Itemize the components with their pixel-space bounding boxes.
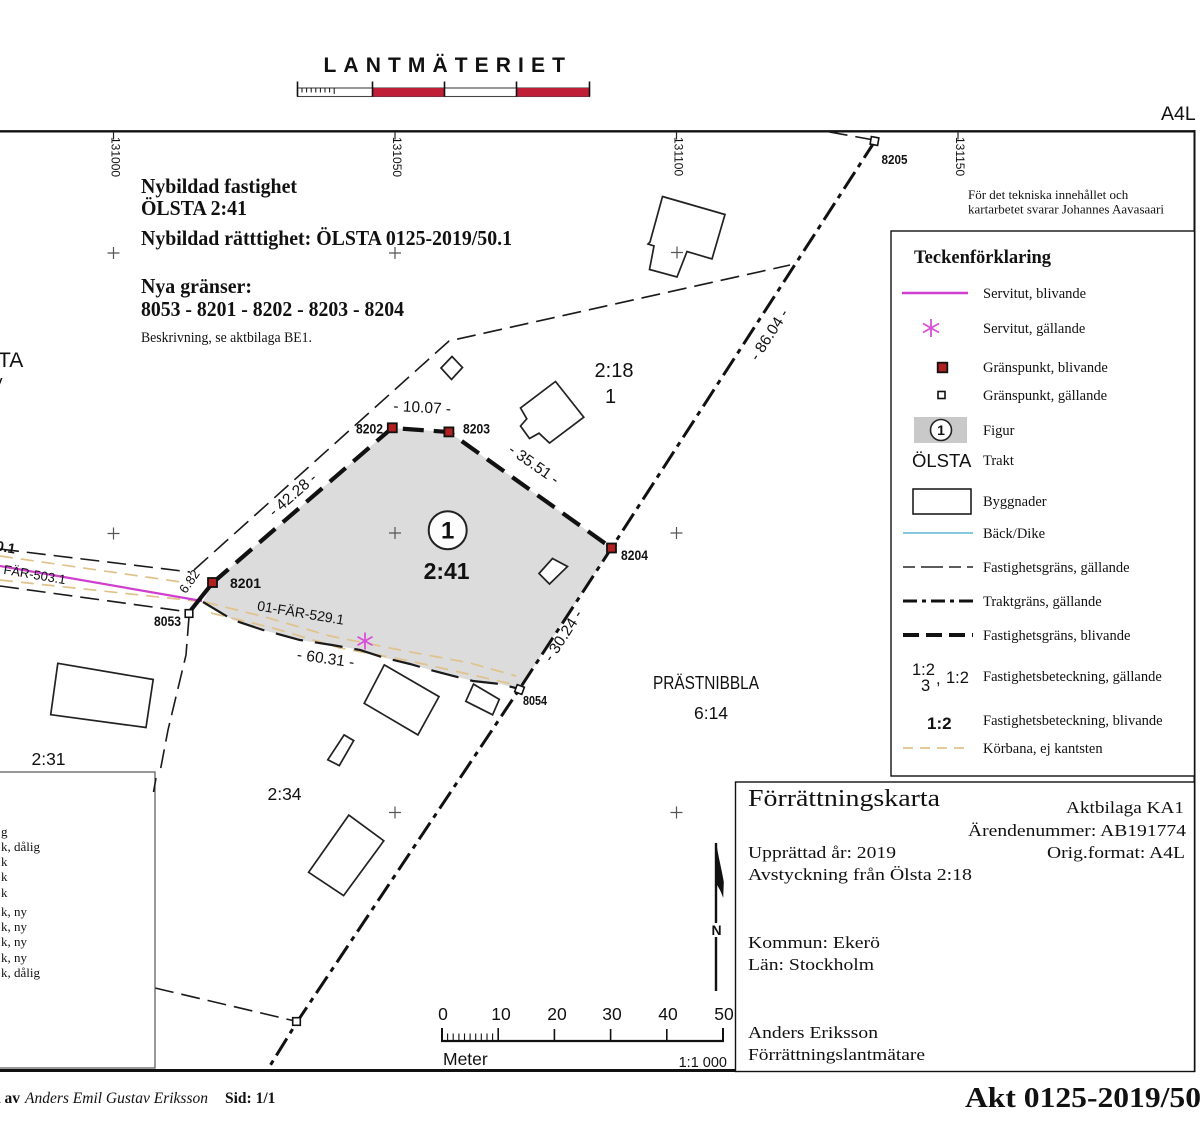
svg-text:131100: 131100 bbox=[672, 137, 686, 176]
svg-text:6.82: 6.82 bbox=[176, 567, 203, 596]
svg-text:8203: 8203 bbox=[463, 422, 490, 437]
svg-text:Orig.format: A4L: Orig.format: A4L bbox=[1047, 843, 1185, 862]
svg-text:ÖLSTA 2:41: ÖLSTA 2:41 bbox=[141, 196, 247, 220]
svg-text:k, dålig: k, dålig bbox=[1, 965, 40, 980]
svg-text:Meter: Meter bbox=[443, 1049, 488, 1069]
svg-text:Förrättningslantmätare: Förrättningslantmätare bbox=[748, 1045, 925, 1064]
svg-text:8204: 8204 bbox=[621, 548, 648, 563]
svg-text:2:41: 2:41 bbox=[424, 558, 470, 584]
svg-text:k, ny: k, ny bbox=[1, 950, 28, 965]
svg-text:A4L: A4L bbox=[1161, 103, 1196, 125]
svg-text:Servitut, blivande: Servitut, blivande bbox=[983, 286, 1086, 302]
svg-text:Traktgräns, gällande: Traktgräns, gällande bbox=[983, 594, 1102, 610]
svg-text:2:18: 2:18 bbox=[595, 360, 634, 382]
svg-text:40: 40 bbox=[658, 1004, 678, 1024]
svg-text:FÄR-503.1: FÄR-503.1 bbox=[2, 562, 66, 587]
svg-text:Fastighetsbeteckning, blivande: Fastighetsbeteckning, blivande bbox=[983, 713, 1163, 729]
svg-text:8201: 8201 bbox=[230, 576, 261, 591]
svg-text:131150: 131150 bbox=[953, 137, 967, 176]
svg-text:Fastighetsgräns, blivande: Fastighetsgräns, blivande bbox=[983, 628, 1130, 644]
svg-text:Avstyckning från Ölsta 2:18: Avstyckning från Ölsta 2:18 bbox=[748, 865, 972, 884]
svg-text:kartarbetet svarar Johannes Aa: kartarbetet svarar Johannes Aavasaari bbox=[968, 202, 1164, 217]
svg-text:Trakt: Trakt bbox=[983, 453, 1014, 469]
svg-text:För det tekniska innehållet oc: För det tekniska innehållet och bbox=[968, 187, 1129, 202]
svg-text:131000: 131000 bbox=[109, 137, 123, 177]
svg-text:,: , bbox=[936, 670, 941, 688]
svg-text:Gränspunkt, gällande: Gränspunkt, gällande bbox=[983, 388, 1107, 404]
svg-text:Gränspunkt, blivande: Gränspunkt, blivande bbox=[983, 360, 1108, 376]
svg-text:20: 20 bbox=[547, 1004, 567, 1024]
svg-text:Teckenförklaring: Teckenförklaring bbox=[914, 248, 1052, 268]
svg-text:Körbana, ej kantsten: Körbana, ej kantsten bbox=[983, 741, 1103, 757]
svg-text:8054: 8054 bbox=[523, 694, 547, 708]
svg-text:Bäck/Dike: Bäck/Dike bbox=[983, 526, 1045, 542]
svg-text:Nybildad fastighet: Nybildad fastighet bbox=[141, 174, 297, 198]
svg-text:8205: 8205 bbox=[882, 153, 908, 167]
svg-text:- 86.04 -: - 86.04 - bbox=[747, 306, 793, 364]
svg-text:8053 - 8201 - 8202 - 8203 - 82: 8053 - 8201 - 8202 - 8203 - 8204 bbox=[141, 297, 404, 321]
svg-text:k, ny: k, ny bbox=[1, 904, 28, 919]
svg-text:k: k bbox=[1, 869, 8, 884]
svg-text:k: k bbox=[1, 854, 8, 869]
svg-text:Nybildad rätttighet: ÖLSTA 012: Nybildad rätttighet: ÖLSTA 0125-2019/50.… bbox=[141, 226, 512, 250]
svg-text:0.1: 0.1 bbox=[0, 538, 17, 557]
svg-text:Servitut, gällande: Servitut, gällande bbox=[983, 321, 1085, 337]
svg-text:131050: 131050 bbox=[390, 137, 404, 177]
svg-text:2:31: 2:31 bbox=[31, 749, 65, 769]
svg-text:TA: TA bbox=[0, 349, 23, 372]
svg-text:Nya gränser:: Nya gränser: bbox=[141, 274, 252, 298]
svg-text:10: 10 bbox=[491, 1004, 511, 1024]
svg-text:Anders Eriksson: Anders Eriksson bbox=[748, 1023, 879, 1042]
svg-text:k, ny: k, ny bbox=[1, 919, 28, 934]
svg-text:1:2: 1:2 bbox=[946, 669, 969, 687]
svg-text:k: k bbox=[1, 885, 8, 900]
svg-text:g: g bbox=[1, 824, 8, 839]
svg-text:1: 1 bbox=[937, 422, 945, 438]
svg-text:Aktbilaga KA1: Aktbilaga KA1 bbox=[1066, 798, 1184, 817]
svg-text:Län: Stockholm: Län: Stockholm bbox=[748, 955, 874, 974]
svg-text:Akt 0125-2019/50: Akt 0125-2019/50 bbox=[965, 1082, 1200, 1114]
svg-text:1:1 000: 1:1 000 bbox=[679, 1055, 727, 1071]
svg-text:1: 1 bbox=[605, 386, 616, 408]
svg-text:8202: 8202 bbox=[356, 422, 383, 437]
svg-text:3: 3 bbox=[921, 677, 930, 695]
svg-text:Kommun: Ekerö: Kommun: Ekerö bbox=[748, 933, 880, 952]
svg-text:2:34: 2:34 bbox=[267, 784, 301, 804]
svg-text:- 60.31 -: - 60.31 - bbox=[296, 647, 356, 672]
svg-text:v: v bbox=[0, 372, 3, 391]
svg-text:Figur: Figur bbox=[983, 423, 1015, 439]
svg-text:ÖLSTA: ÖLSTA bbox=[912, 450, 972, 471]
svg-text:0: 0 bbox=[438, 1004, 448, 1024]
svg-text:Fastighetsbeteckning, gällande: Fastighetsbeteckning, gällande bbox=[983, 669, 1162, 685]
svg-text:k av: k av bbox=[0, 1090, 20, 1107]
svg-text:N: N bbox=[711, 922, 721, 938]
svg-text:Fastighetsgräns, gällande: Fastighetsgräns, gällande bbox=[983, 560, 1130, 576]
svg-text:PRÄSTNIBBLA: PRÄSTNIBBLA bbox=[653, 672, 760, 693]
svg-text:Anders Emil Gustav Eriksson: Anders Emil Gustav Eriksson bbox=[24, 1090, 208, 1107]
svg-text:6:14: 6:14 bbox=[694, 703, 728, 723]
svg-text:50: 50 bbox=[714, 1004, 734, 1024]
svg-text:k, ny: k, ny bbox=[1, 934, 28, 949]
svg-text:Ärendenummer: AB191774: Ärendenummer: AB191774 bbox=[968, 821, 1187, 840]
svg-text:- 10.07 -: - 10.07 - bbox=[393, 398, 452, 418]
svg-text:8053: 8053 bbox=[154, 614, 181, 629]
svg-text:Förrättningskarta: Förrättningskarta bbox=[748, 786, 940, 812]
svg-text:k, dålig: k, dålig bbox=[1, 839, 40, 854]
svg-text:1:2: 1:2 bbox=[927, 714, 952, 733]
svg-text:Upprättad år: 2019: Upprättad år: 2019 bbox=[748, 843, 896, 862]
svg-text:Beskrivning, se aktbilaga BE1.: Beskrivning, se aktbilaga BE1. bbox=[141, 330, 312, 346]
svg-text:Byggnader: Byggnader bbox=[983, 494, 1047, 510]
svg-text:1: 1 bbox=[441, 518, 454, 545]
svg-text:LANTMÄTERIET: LANTMÄTERIET bbox=[324, 54, 573, 77]
svg-text:Sid: 1/1: Sid: 1/1 bbox=[225, 1090, 275, 1107]
svg-text:30: 30 bbox=[602, 1004, 622, 1024]
